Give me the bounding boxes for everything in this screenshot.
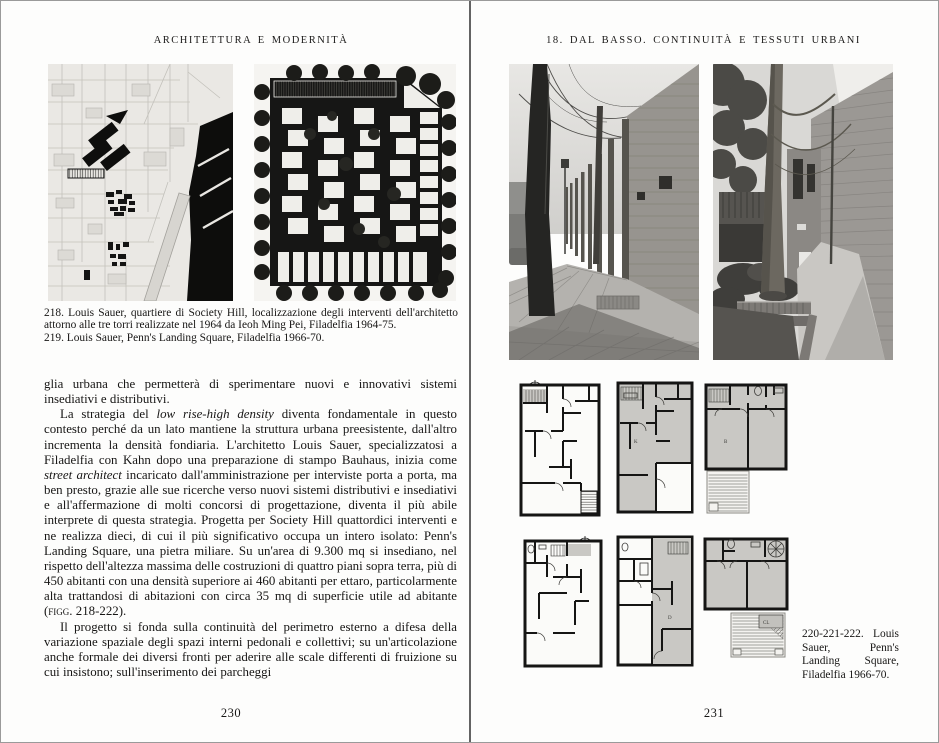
book-spread: ARCHITETTURA E MODERNITÀ: [0, 0, 939, 743]
photo-220-street-view: [509, 64, 699, 360]
lower-stair: [581, 491, 597, 513]
caption-218: 218. Louis Sauer, quartiere di Society H…: [44, 307, 458, 332]
page-number-right: 231: [690, 706, 738, 721]
paragraph-strategy: La strategia del low rise-high density d…: [44, 407, 457, 619]
tree-grate: [597, 296, 639, 309]
figure-219-site-plan: [254, 64, 456, 301]
photo-221-walkway: [713, 64, 893, 360]
stair: [709, 389, 729, 402]
terrace: CL: [731, 613, 785, 657]
caption-219: 219. Louis Sauer, Penn's Landing Square,…: [44, 332, 458, 344]
figure-captions-left: 218. Louis Sauer, quartiere di Society H…: [44, 307, 458, 344]
page-number-left: 230: [207, 706, 255, 721]
floor-plan-2: K: [616, 379, 694, 515]
upper-gray-room: [567, 544, 591, 556]
running-head-right: 18. DAL BASSO. CONTINUITÀ E TESSUTI URBA…: [501, 35, 906, 46]
floor-plan-3: B: [704, 381, 788, 515]
floor-plan-1: [519, 379, 601, 518]
sign: [797, 224, 806, 230]
body-text: glia urbana che permetterà di sperimenta…: [44, 377, 457, 680]
paragraph-continuation: glia urbana che permetterà di sperimenta…: [44, 377, 457, 407]
room-label-closet: CL: [763, 621, 769, 626]
paragraph-project: Il progetto si fonda sulla continuità de…: [44, 620, 457, 681]
running-head-left: ARCHITETTURA E MODERNITÀ: [44, 35, 458, 46]
terrace: [707, 471, 749, 513]
hatched-slab-building: [68, 169, 104, 178]
floor-plan-4: [523, 533, 603, 668]
floor-plan-6: CL: [703, 533, 789, 667]
stair: [551, 545, 565, 556]
page-divider: [469, 1, 471, 743]
stair: [668, 542, 688, 554]
north-row-roofs: [274, 81, 396, 97]
figure-218-society-hill-map: [48, 64, 233, 301]
lower-terrace-room: [656, 463, 691, 511]
room-label-kitchen: K: [634, 440, 638, 445]
floor-plan-5: D: [616, 533, 694, 668]
room-label-dining: D: [668, 616, 672, 621]
caption-220-222: 220-221-222. Louis Sauer, Penn's Landing…: [802, 628, 899, 682]
